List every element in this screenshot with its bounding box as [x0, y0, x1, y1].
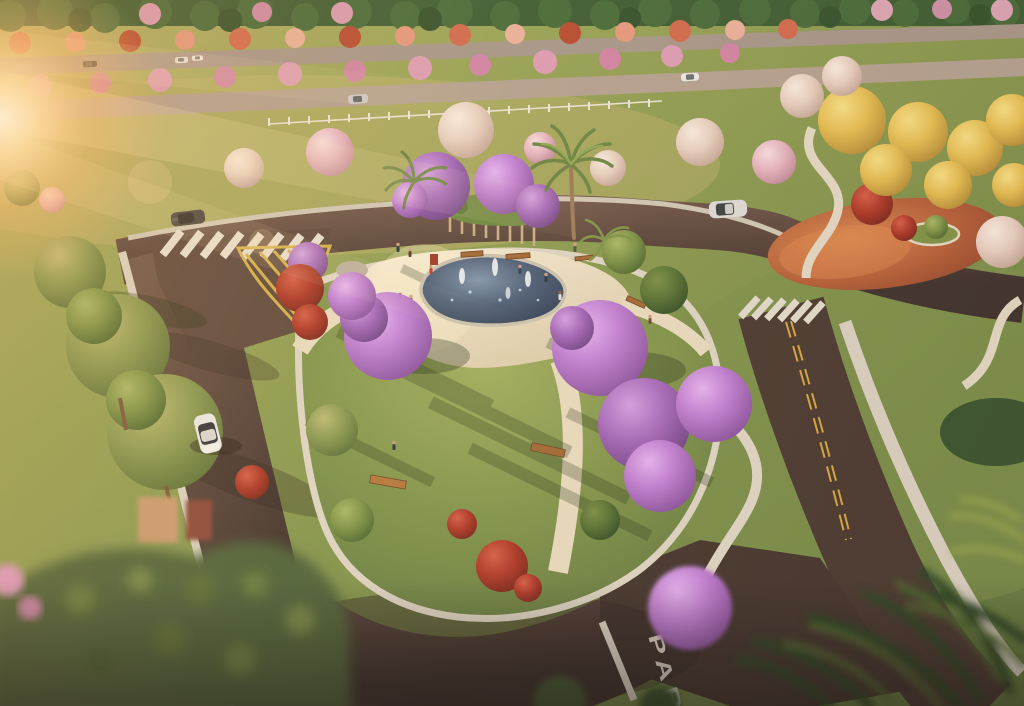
bottom-vignette	[0, 580, 1024, 706]
park-aerial-render: PARE	[0, 0, 1024, 706]
render-canvas: PARE	[0, 0, 1024, 706]
lighting	[0, 0, 1024, 706]
